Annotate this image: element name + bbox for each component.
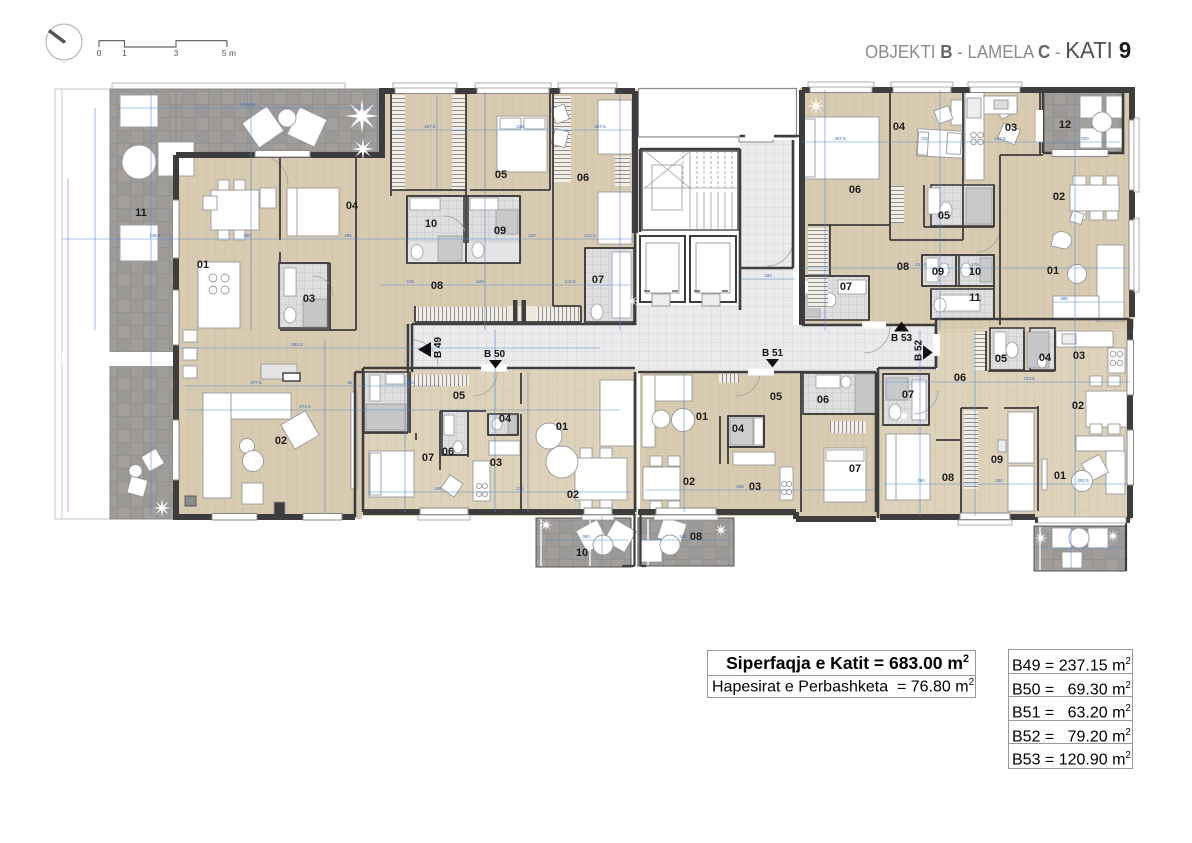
svg-text:267.5: 267.5 <box>594 124 606 129</box>
svg-text:1,046.5: 1,046.5 <box>239 102 255 107</box>
svg-text:04: 04 <box>893 121 906 133</box>
svg-text:5 m: 5 m <box>222 48 236 58</box>
svg-text:310: 310 <box>516 124 524 129</box>
svg-text:212.5: 212.5 <box>915 262 927 267</box>
svg-text:12: 12 <box>1059 119 1071 131</box>
svg-text:02: 02 <box>1072 400 1084 412</box>
svg-text:485: 485 <box>344 233 352 238</box>
svg-text:05: 05 <box>995 353 1007 365</box>
svg-text:242.5: 242.5 <box>994 136 1006 141</box>
svg-text:05: 05 <box>938 210 950 222</box>
svg-text:04: 04 <box>1039 352 1052 364</box>
svg-text:06: 06 <box>442 446 454 458</box>
svg-text:01: 01 <box>1054 470 1066 482</box>
svg-text:367.5: 367.5 <box>834 136 846 141</box>
svg-text:09: 09 <box>494 225 506 237</box>
svg-text:10: 10 <box>969 266 981 278</box>
svg-text:485: 485 <box>1060 296 1068 301</box>
svg-text:3: 3 <box>174 48 179 58</box>
svg-text:B 49: B 49 <box>433 336 444 358</box>
svg-text:04: 04 <box>499 413 512 425</box>
svg-text:B 52: B 52 <box>914 339 925 361</box>
svg-text:B 51: B 51 <box>762 348 784 359</box>
svg-text:862.5: 862.5 <box>291 342 303 347</box>
svg-text:02: 02 <box>1053 191 1065 203</box>
svg-text:10: 10 <box>425 218 437 230</box>
svg-text:01: 01 <box>696 411 708 423</box>
svg-text:1: 1 <box>122 48 127 58</box>
svg-text:07: 07 <box>902 389 914 401</box>
svg-text:06: 06 <box>577 172 589 184</box>
svg-text:300: 300 <box>679 534 687 539</box>
svg-text:02: 02 <box>275 435 287 447</box>
svg-text:190: 190 <box>434 486 442 491</box>
svg-text:07: 07 <box>849 463 861 475</box>
svg-text:09: 09 <box>991 454 1003 466</box>
svg-text:120: 120 <box>528 233 536 238</box>
svg-text:03: 03 <box>490 457 502 469</box>
svg-text:03: 03 <box>749 481 761 493</box>
svg-text:01: 01 <box>197 259 209 271</box>
svg-text:200: 200 <box>764 273 772 278</box>
svg-text:215: 215 <box>406 279 414 284</box>
svg-text:07: 07 <box>422 452 434 464</box>
svg-text:215: 215 <box>516 486 524 491</box>
svg-text:246.5: 246.5 <box>149 233 161 238</box>
svg-text:08: 08 <box>942 472 954 484</box>
svg-text:06: 06 <box>954 372 966 384</box>
svg-text:08: 08 <box>431 280 443 292</box>
svg-text:01: 01 <box>556 421 568 433</box>
svg-text:07: 07 <box>840 281 852 293</box>
svg-text:62: 62 <box>347 380 353 385</box>
svg-text:07: 07 <box>592 274 604 286</box>
svg-text:05: 05 <box>495 169 507 181</box>
svg-text:392.5: 392.5 <box>1077 478 1089 483</box>
svg-text:525: 525 <box>476 279 484 284</box>
svg-text:360: 360 <box>243 233 251 238</box>
svg-text:B 50: B 50 <box>484 349 506 360</box>
svg-text:672.5: 672.5 <box>299 404 311 409</box>
svg-text:02: 02 <box>567 489 579 501</box>
svg-text:267.5: 267.5 <box>424 124 436 129</box>
svg-text:743.5: 743.5 <box>1023 376 1035 381</box>
svg-text:03: 03 <box>1005 122 1017 134</box>
svg-text:02: 02 <box>683 476 695 488</box>
svg-text:290: 290 <box>917 478 925 483</box>
svg-text:03: 03 <box>303 293 315 305</box>
svg-text:310: 310 <box>921 136 929 141</box>
svg-text:10: 10 <box>576 547 588 559</box>
svg-text:377.5: 377.5 <box>250 380 262 385</box>
svg-text:112.5: 112.5 <box>565 279 576 284</box>
svg-text:920: 920 <box>1081 136 1089 141</box>
svg-text:06: 06 <box>817 394 829 406</box>
svg-text:288: 288 <box>736 484 744 489</box>
svg-text:01: 01 <box>1047 265 1059 277</box>
svg-text:09: 09 <box>932 266 944 278</box>
svg-text:B 53: B 53 <box>891 333 913 344</box>
svg-text:11: 11 <box>135 207 147 219</box>
svg-text:04: 04 <box>732 423 745 435</box>
svg-text:05: 05 <box>453 390 465 402</box>
svg-text:04: 04 <box>346 200 359 212</box>
svg-text:05: 05 <box>770 391 782 403</box>
svg-text:0: 0 <box>97 48 102 58</box>
svg-text:312.5: 312.5 <box>584 233 596 238</box>
svg-text:08: 08 <box>690 531 702 543</box>
svg-text:06: 06 <box>849 184 861 196</box>
svg-text:230: 230 <box>406 380 414 385</box>
svg-text:03: 03 <box>1073 350 1085 362</box>
svg-text:360: 360 <box>582 534 590 539</box>
svg-text:08: 08 <box>897 261 909 273</box>
svg-text:11: 11 <box>969 292 981 304</box>
svg-text:260: 260 <box>995 478 1003 483</box>
